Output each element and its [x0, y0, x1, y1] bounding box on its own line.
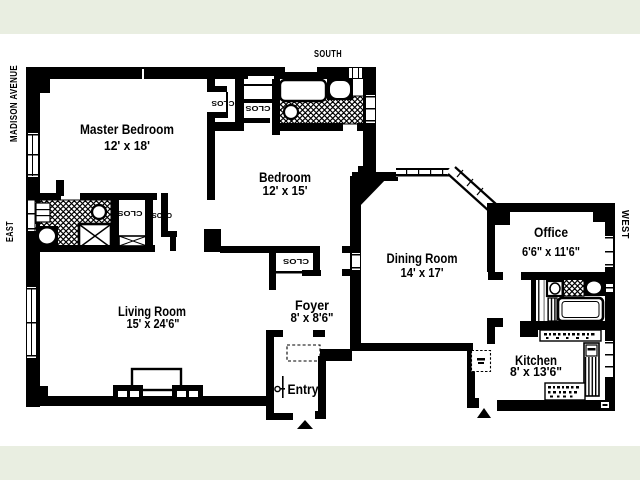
svg-text:MADISON AVENUE: MADISON AVENUE	[9, 65, 20, 142]
svg-text:CLOS: CLOS	[245, 104, 270, 111]
svg-text:15' x 24'6": 15' x 24'6"	[127, 317, 180, 331]
svg-text:Dining Room: Dining Room	[387, 251, 458, 266]
svg-text:14' x 17': 14' x 17'	[401, 266, 444, 280]
svg-text:SOUTH: SOUTH	[314, 49, 342, 60]
svg-text:CLOS: CLOS	[283, 257, 309, 264]
svg-text:6'6" x 11'6": 6'6" x 11'6"	[522, 245, 580, 259]
svg-text:EAST: EAST	[5, 221, 16, 242]
svg-text:WEST: WEST	[619, 210, 630, 239]
svg-text:Bedroom: Bedroom	[259, 170, 311, 185]
svg-text:12' x 15': 12' x 15'	[263, 184, 308, 198]
svg-text:Master Bedroom: Master Bedroom	[80, 122, 174, 137]
svg-text:CLOS: CLOS	[117, 209, 142, 216]
svg-text:8' x 8'6": 8' x 8'6"	[291, 311, 334, 325]
svg-text:CLOS: CLOS	[211, 99, 234, 106]
svg-text:Entry: Entry	[288, 382, 319, 397]
svg-text:Office: Office	[534, 225, 568, 240]
svg-text:12' x 18': 12' x 18'	[104, 139, 150, 153]
svg-text:8' x 13'6": 8' x 13'6"	[510, 365, 562, 379]
svg-text:CLOS: CLOS	[152, 211, 172, 218]
